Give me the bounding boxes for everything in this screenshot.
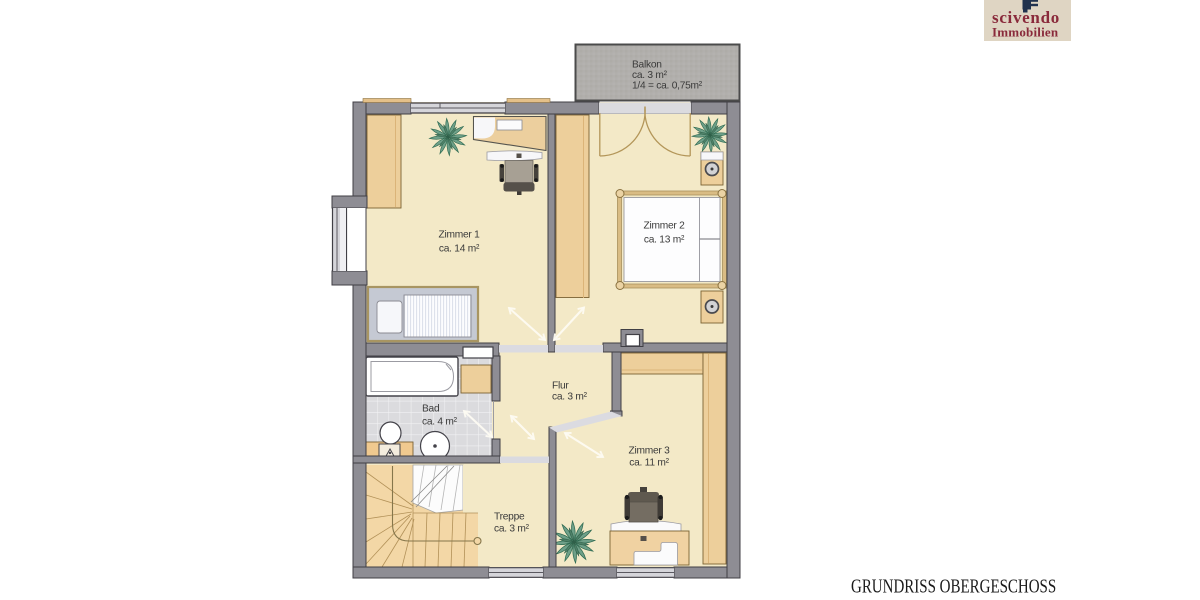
svg-text:Zimmer 1: Zimmer 1 (438, 230, 480, 241)
svg-text:ca. 3 m²: ca. 3 m² (494, 524, 530, 535)
svg-text:ca. 13 m²: ca. 13 m² (644, 235, 685, 246)
svg-text:Treppe: Treppe (494, 512, 525, 523)
svg-text:Immobilien: Immobilien (992, 25, 1059, 40)
svg-text:ca. 3 m²: ca. 3 m² (632, 70, 668, 81)
svg-text:GRUNDRISS OBERGESCHOSS: GRUNDRISS OBERGESCHOSS (851, 574, 1056, 597)
svg-text:Zimmer 3: Zimmer 3 (628, 446, 670, 457)
svg-text:Balkon: Balkon (632, 60, 662, 71)
svg-text:1/4 = ca. 0,75m²: 1/4 = ca. 0,75m² (632, 81, 703, 92)
svg-text:ca. 4 m²: ca. 4 m² (422, 417, 458, 428)
svg-text:Zimmer 2: Zimmer 2 (643, 221, 685, 232)
svg-text:ca. 3 m²: ca. 3 m² (552, 392, 588, 403)
svg-text:Flur: Flur (552, 381, 569, 392)
svg-text:Bad: Bad (422, 404, 440, 415)
svg-text:ca. 11 m²: ca. 11 m² (629, 458, 669, 469)
svg-text:ca. 14 m²: ca. 14 m² (439, 244, 480, 255)
